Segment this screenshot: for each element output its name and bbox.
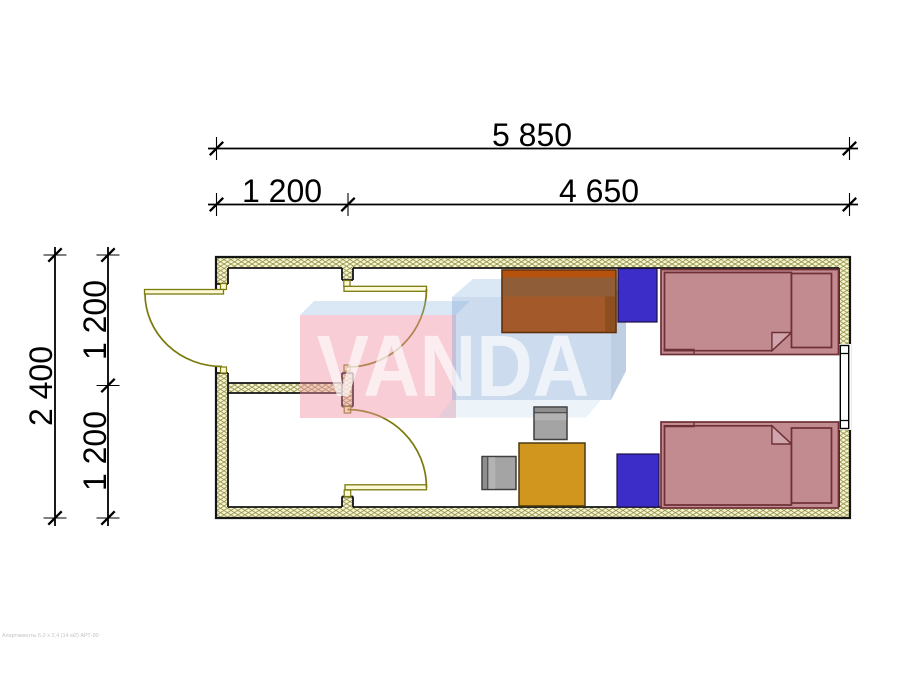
svg-text:1 200: 1 200 bbox=[77, 411, 113, 491]
svg-text:1 200: 1 200 bbox=[77, 280, 113, 360]
svg-text:4 650: 4 650 bbox=[559, 173, 639, 209]
svg-text:5 850: 5 850 bbox=[492, 117, 572, 153]
svg-text:2 400: 2 400 bbox=[23, 346, 59, 426]
svg-text:1 200: 1 200 bbox=[242, 173, 322, 209]
svg-text:Апартаменты 6,0 х 2,4 (14 м2): Апартаменты 6,0 х 2,4 (14 м2) АРТ-00 bbox=[2, 633, 99, 639]
